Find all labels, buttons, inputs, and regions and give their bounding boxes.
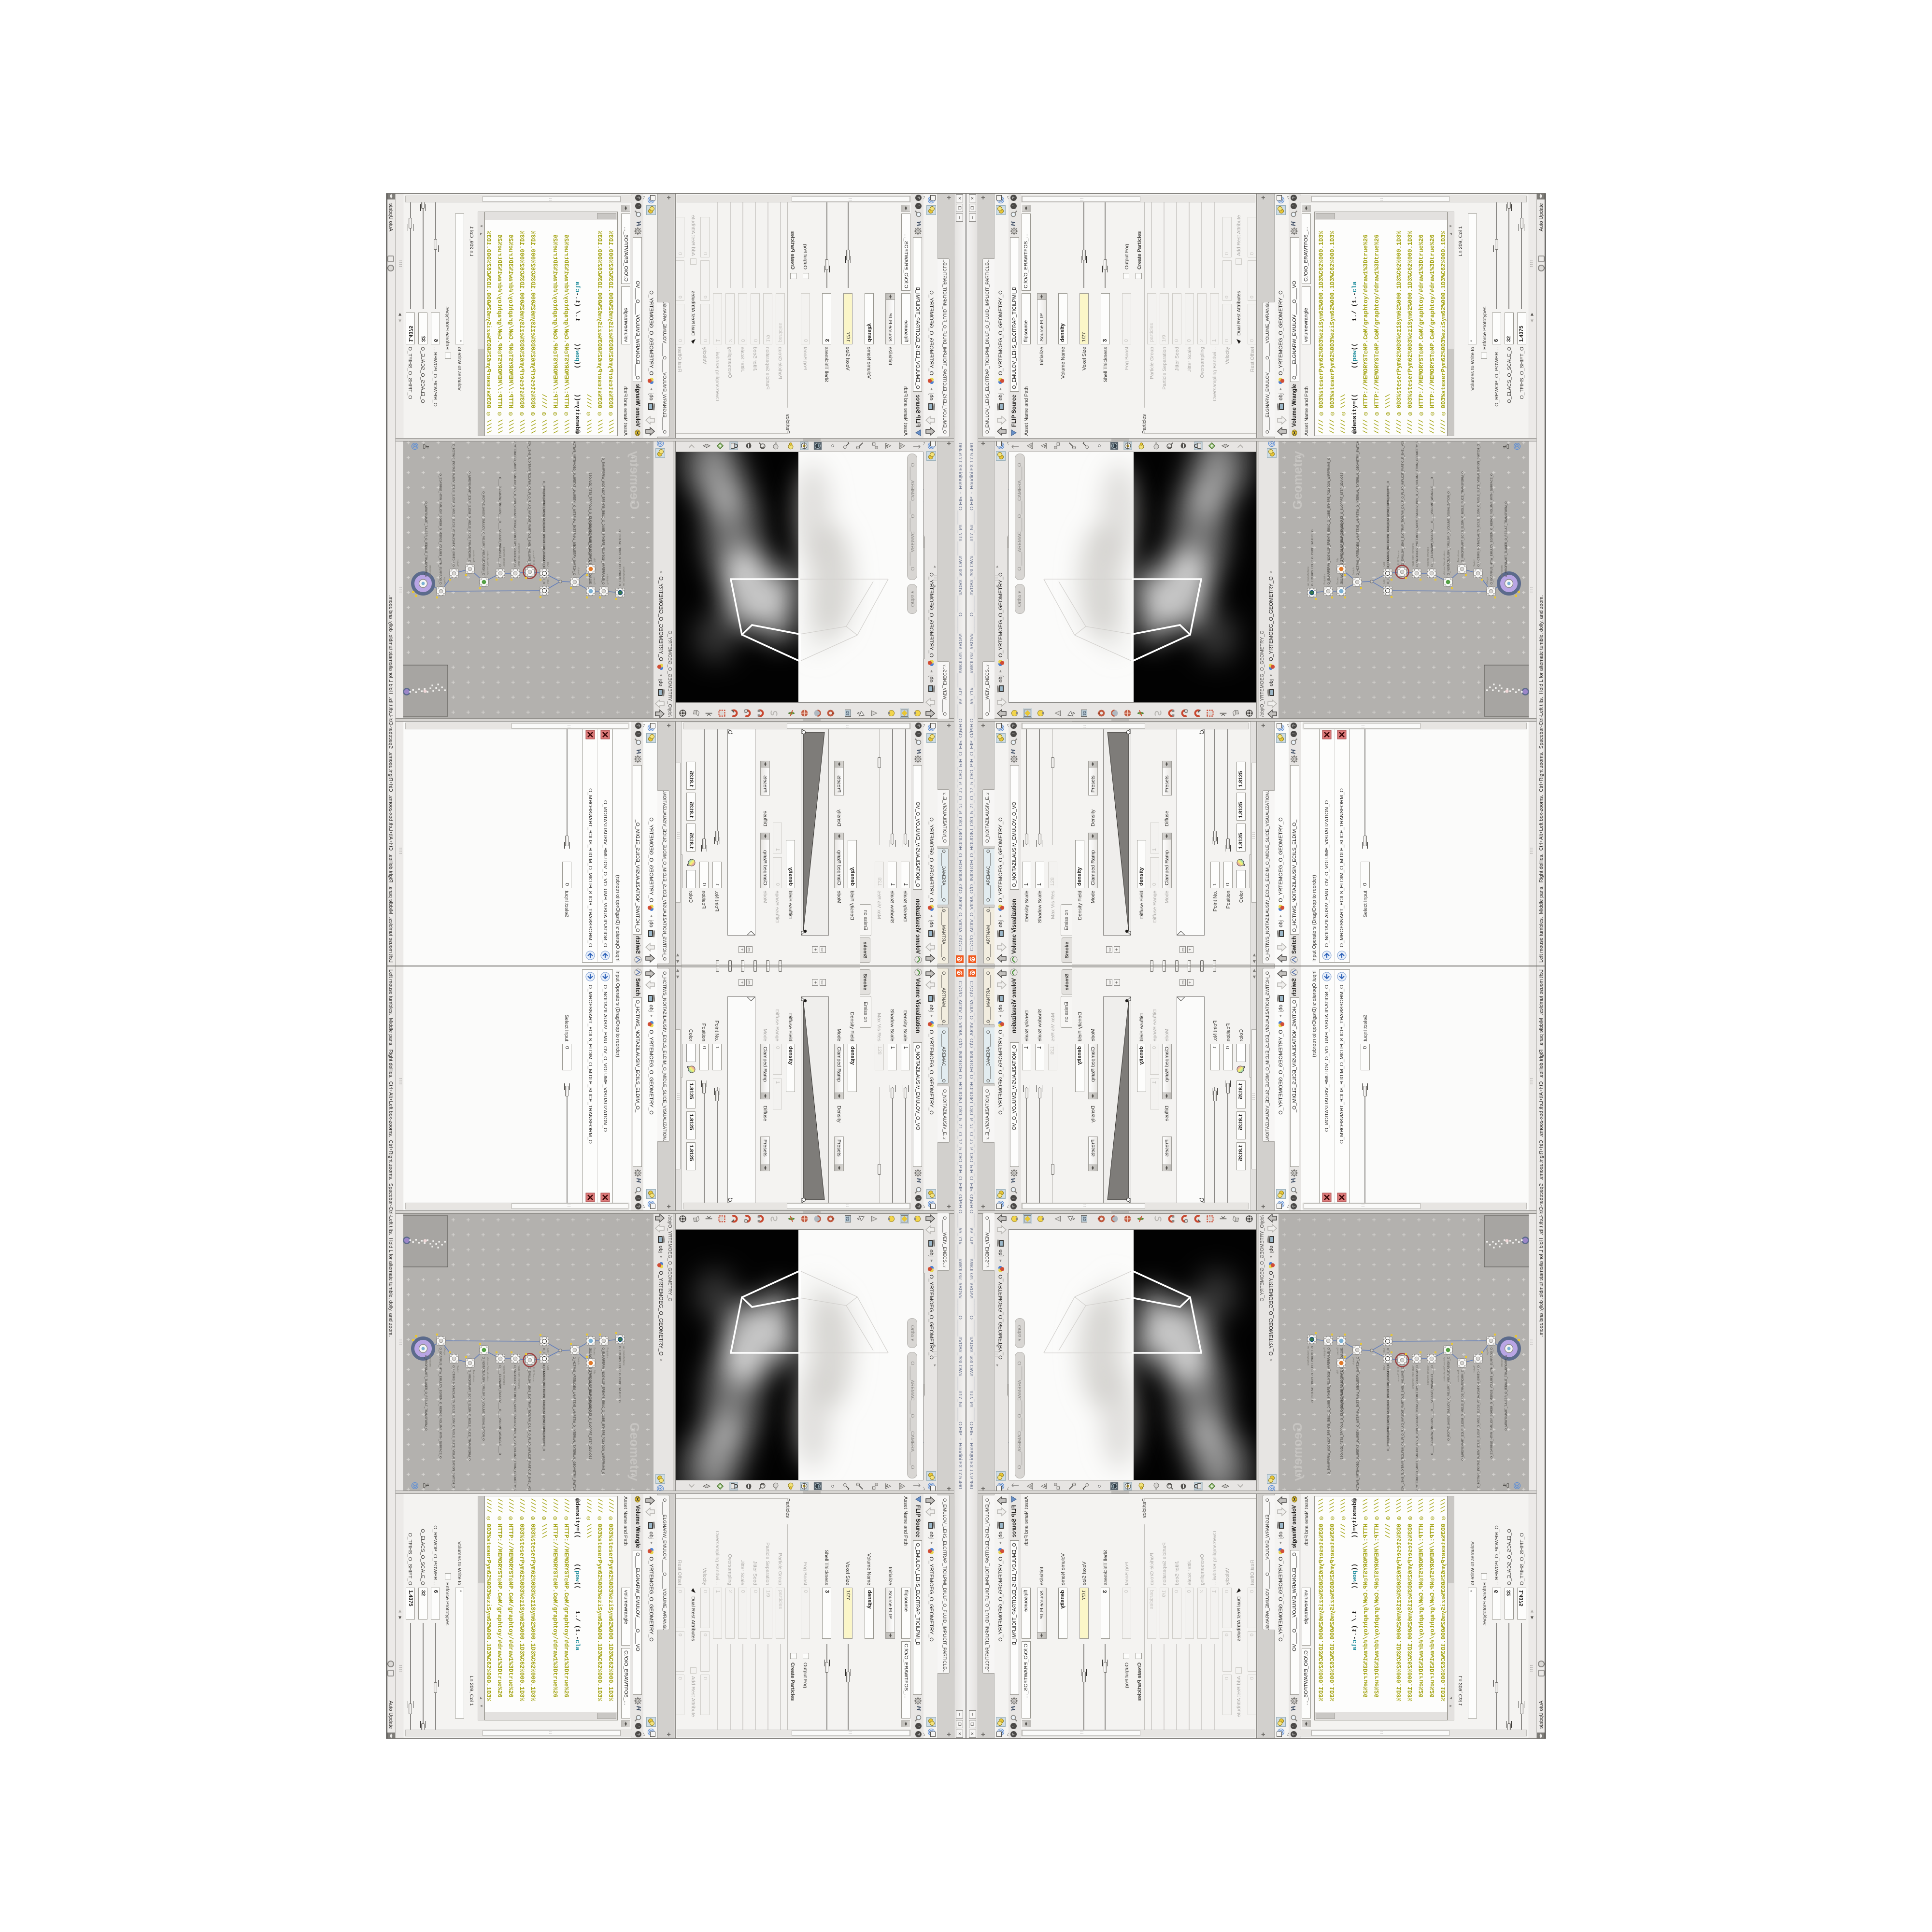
svg-text:Transform: Transform — [1501, 1355, 1504, 1367]
svg-text:O_HCTIWS_NOITAZILAUSV_ECILS_EL: O_HCTIWS_NOITAZILAUSV_ECILS_ELDIM_O_MIDL… — [452, 1365, 455, 1488]
svg-text:Volume Wrangle: Volume Wrangle — [1427, 1365, 1430, 1385]
svg-text:O_HCTIWS_NOITAZILAUSV_ECILS_EL: O_HCTIWS_NOITAZILAUSV_ECILS_ELDIM_O_MIDL… — [452, 444, 455, 567]
svg-text:?: ? — [1011, 724, 1016, 727]
svg-text:PolyWire: PolyWire — [606, 574, 609, 584]
svg-text:O_HCTIWS_YRTEMOEG_LANRETXE_LAN: O_HCTIWS_YRTEMOEG_LANRETXE_LANRETNI_O_IN… — [572, 439, 575, 575]
svg-text:O_ECAFRUS_HTIW_EMULOV_EGREM_O_: O_ECAFRUS_HTIW_EMULOV_EGREM_O_MERGE_VOLU… — [439, 473, 441, 584]
svg-text:ao_CubeSphere: ao_CubeSphere — [622, 1346, 625, 1365]
svg-text:Transform: Transform — [472, 1370, 475, 1382]
svg-text:O_MROFSNART_TLUSER_O_RESULT_TR: O_MROFSNART_TLUSER_O_RESULT_TRANSFORM_O — [1505, 501, 1508, 577]
svg-text:O_MQ_DIULF_ELIF_GENUS_O_D: O_MQ_DIULF_ELIF_GENUS_O_D — [1341, 1370, 1344, 1416]
svg-text:O_EMARFERIW_NOGYLOP_EREHPS_EBU: O_EMARFERIW_NOGYLOP_EREHPS_EBUC_O_CUBE_S… — [601, 1348, 604, 1475]
svg-text:Geometry: Geometry — [1290, 451, 1305, 510]
svg-text:?: ? — [1292, 1205, 1296, 1207]
svg-text:i: i — [1011, 205, 1016, 207]
svg-text:O_MROFSNART_TLUSER_O_RESULT_TR: O_MROFSNART_TLUSER_O_RESULT_TRANSFORM_O — [424, 1355, 427, 1431]
svg-text:VDB from Polygons: VDB from Polygons — [517, 1365, 520, 1389]
svg-text:ao_CubeSphere: ao_CubeSphere — [1307, 567, 1310, 586]
svg-text:O_MROFSNART_TLUSER_O_RESULT_TR: O_MROFSNART_TLUSER_O_RESULT_TRANSFORM_O — [1505, 1355, 1508, 1431]
svg-text:O_MROFSNART_ECILS_ELDIM_O_MIDL: O_MROFSNART_ECILS_ELDIM_O_MIDLE_SLICE_TR… — [468, 471, 470, 562]
svg-text:O_SNOGILOP_YRTEMOEG_MORF_EMULO: O_SNOGILOP_YRTEMOEG_MORF_EMULOV_BDV_O_VD… — [1416, 439, 1419, 567]
svg-text:i: i — [636, 205, 640, 207]
svg-text:O_SNOGILOP_YRTEMOEG_MORF_EMULO: O_SNOGILOP_YRTEMOEG_MORF_EMULOV_BDV_O_VD… — [1416, 1365, 1419, 1493]
svg-text:?: ? — [636, 197, 640, 199]
svg-text:Transform: Transform — [1501, 565, 1504, 577]
svg-text:i: i — [636, 733, 640, 735]
svg-text:O_NOITAZILAUSIV_EMULOV_O_VOLUM: O_NOITAZILAUSIV_EMULOV_O_VOLUME_VISUALIZ… — [482, 1357, 484, 1441]
svg-text:i: i — [1292, 205, 1296, 207]
svg-text:Bound: Bound — [1336, 1348, 1339, 1355]
svg-text:?: ? — [636, 724, 640, 727]
svg-text:O_SNOGILOP_YRTEMOEG_MORF_EMULO: O_SNOGILOP_YRTEMOEG_MORF_EMULOV_BDV_O_VD… — [513, 439, 516, 567]
svg-text:Volume Wrangle: Volume Wrangle — [502, 547, 505, 567]
svg-text:Transform: Transform — [1457, 550, 1460, 562]
svg-text:O____ELGNARW_EMULOV____O____VO: O____ELGNARW_EMULOV____O____VOLUME_WRANG… — [1431, 477, 1434, 567]
svg-text:Bound: Bound — [593, 1348, 596, 1355]
svg-text:7D: 7D — [845, 710, 850, 715]
svg-text:PolyWire: PolyWire — [606, 1348, 609, 1358]
svg-text:Geometry: Geometry — [627, 451, 642, 510]
svg-text:VDB from Polygons: VDB from Polygons — [1412, 1365, 1415, 1389]
svg-text:O____ELGNARW_EMULOV____O____VO: O____ELGNARW_EMULOV____O____VOLUME_WRANG… — [1431, 1365, 1434, 1455]
svg-text:Geometry: Geometry — [627, 1422, 642, 1481]
svg-text:Geometry: Geometry — [1290, 1422, 1305, 1481]
svg-text:Volume Visualization: Volume Visualization — [486, 1357, 489, 1381]
svg-text:O_MROFSNART_TLUSER_O_RESULT_TR: O_MROFSNART_TLUSER_O_RESULT_TRANSFORM_O — [424, 501, 427, 577]
svg-text:Clip: Clip — [1383, 1365, 1386, 1370]
svg-text:Merge: Merge — [1486, 1348, 1489, 1355]
svg-text:Clip: Clip — [546, 580, 549, 584]
svg-text:O_EMULOV_ROLRETNI_PILC_O_CLIP_: O_EMULOV_ROLRETNI_PILC_O_CLIP_INTERIOR_V… — [542, 481, 545, 567]
svg-text:O_EMULOV_ROLRETNI_PILC_O_CLIP_: O_EMULOV_ROLRETNI_PILC_O_CLIP_INTERIOR_V… — [1387, 1365, 1390, 1451]
svg-text:O_EMULOV_LEHS_ELCITRAP_TICILPM: O_EMULOV_LEHS_ELCITRAP_TICILPMI_DIULF_O_… — [527, 1367, 530, 1493]
svg-text:Switch: Switch — [456, 1365, 459, 1373]
svg-text:?: ? — [1292, 724, 1296, 727]
svg-text:?: ? — [1292, 197, 1296, 199]
svg-text:?: ? — [1011, 197, 1016, 199]
svg-text:Volume Visualization: Volume Visualization — [1443, 1357, 1446, 1381]
svg-text:?: ? — [916, 724, 921, 727]
svg-text:PolyWire: PolyWire — [1323, 1348, 1326, 1358]
svg-text:?: ? — [1292, 1733, 1296, 1735]
svg-text:?: ? — [916, 197, 921, 199]
svg-text:7D: 7D — [845, 1217, 850, 1222]
svg-text:O_EMULOV_ROLRETNI_PILC_O_CLIP_: O_EMULOV_ROLRETNI_PILC_O_CLIP_INTERIOR_V… — [542, 1365, 545, 1451]
svg-text:File: File — [593, 558, 596, 562]
svg-text:VDB from Polygons: VDB from Polygons — [1412, 543, 1415, 567]
svg-text:O_MQ_DIULF_ELIF_GENUS_O_D: O_MQ_DIULF_ELIF_GENUS_O_D — [588, 1370, 591, 1416]
svg-text:Volume Wrangle: Volume Wrangle — [502, 1365, 505, 1385]
svg-text:O_SNOGILOP_YRTEMOEG_MORF_EMULO: O_SNOGILOP_YRTEMOEG_MORF_EMULOV_BDV_O_VD… — [513, 1365, 516, 1493]
svg-text:O_EMULOV_LEHS_ELCITRAP_TICILPM: O_EMULOV_LEHS_ELCITRAP_TICILPMI_DIULF_O_… — [1402, 1367, 1405, 1493]
svg-text:7D: 7D — [1082, 710, 1087, 715]
svg-text:O_ECAFRUS_HTIW_EMULOV_EGREM_O_: O_ECAFRUS_HTIW_EMULOV_EGREM_O_MERGE_VOLU… — [1491, 1348, 1493, 1459]
svg-text:i: i — [1011, 733, 1016, 735]
svg-text:?: ? — [916, 1205, 921, 1207]
svg-text:O_NOITAZILAUSIV_EMULOV_O_VOLUM: O_NOITAZILAUSIV_EMULOV_O_VOLUME_VISUALIZ… — [1448, 1357, 1450, 1441]
svg-text:O_EREHPS_EBUC_O_CUBE_SPHERE_O: O_EREHPS_EBUC_O_CUBE_SPHERE_O — [618, 1346, 621, 1403]
svg-text:Transform: Transform — [428, 565, 431, 577]
svg-text:O_HCTIWS_NOITAZILAUSV_ECILS_EL: O_HCTIWS_NOITAZILAUSV_ECILS_ELDIM_O_MIDL… — [1477, 444, 1480, 567]
svg-text:PolyWire: PolyWire — [1323, 574, 1326, 584]
svg-text:O_EMARFERIW_NOGYLOP_EREHPS_EBU: O_EMARFERIW_NOGYLOP_EREHPS_EBUC_O_CUBE_S… — [601, 457, 604, 584]
svg-text:Transform: Transform — [472, 550, 475, 562]
svg-text:O_HCTIWS_YRTEMOEG_LANRETXE_LAN: O_HCTIWS_YRTEMOEG_LANRETXE_LANRETNI_O_IN… — [1357, 439, 1360, 575]
svg-text:Switch: Switch — [577, 568, 580, 575]
svg-text:Clip: Clip — [1383, 580, 1386, 584]
svg-text:ao_CubeSphere: ao_CubeSphere — [622, 567, 625, 586]
svg-text:Clip: Clip — [1383, 562, 1386, 567]
svg-text:File: File — [593, 1370, 596, 1374]
svg-text:O_MQ_DIULF_ELIF_GENUS_O_D: O_MQ_DIULF_ELIF_GENUS_O_D — [1341, 516, 1344, 562]
svg-text:i: i — [916, 733, 921, 735]
svg-text:Bound: Bound — [1336, 577, 1339, 584]
svg-text:FLIP Source: FLIP Source — [532, 551, 535, 565]
svg-text:Volume Visualization: Volume Visualization — [486, 551, 489, 575]
svg-text:?: ? — [1011, 1205, 1016, 1207]
svg-text:FLIP Source: FLIP Source — [532, 1367, 535, 1381]
svg-text:O_EMULOV_ROLRETNI_PILC_O_CLIP_: O_EMULOV_ROLRETNI_PILC_O_CLIP_INTERIOR_V… — [1387, 481, 1390, 567]
svg-text:FLIP Source: FLIP Source — [1397, 1367, 1400, 1381]
svg-text:O_NOITAZILAUSIV_EMULOV_O_VOLUM: O_NOITAZILAUSIV_EMULOV_O_VOLUME_VISUALIZ… — [1448, 491, 1450, 575]
svg-text:Switch: Switch — [577, 1357, 580, 1364]
svg-text:Switch: Switch — [1352, 568, 1355, 575]
svg-text:O_MROFSNART_ECILS_ELDIM_O_MIDL: O_MROFSNART_ECILS_ELDIM_O_MIDLE_SLICE_TR… — [468, 1370, 470, 1461]
svg-text:Volume Wrangle: Volume Wrangle — [1427, 547, 1430, 567]
svg-text:?: ? — [1011, 1733, 1016, 1735]
svg-text:Switch: Switch — [1473, 1365, 1476, 1373]
svg-text:Bound: Bound — [593, 577, 596, 584]
svg-text:O____ELGNARW_EMULOV____O____VO: O____ELGNARW_EMULOV____O____VOLUME_WRANG… — [498, 1365, 501, 1455]
svg-text:O_EMARFERIW_NOGYLOP_EREHPS_EBU: O_EMARFERIW_NOGYLOP_EREHPS_EBUC_O_CUBE_S… — [1328, 457, 1331, 584]
svg-text:O_EREHPS_EBUC_O_CUBE_SPHERE_O: O_EREHPS_EBUC_O_CUBE_SPHERE_O — [1311, 529, 1314, 586]
svg-text:O_HCTIWS_NOITAZILAUSV_ECILS_EL: O_HCTIWS_NOITAZILAUSV_ECILS_ELDIM_O_MIDL… — [1477, 1365, 1480, 1488]
svg-text:O_MQ_DIULF_ELIF_GENUS_O_D: O_MQ_DIULF_ELIF_GENUS_O_D — [588, 516, 591, 562]
svg-text:i: i — [916, 205, 921, 207]
svg-text:Transform: Transform — [428, 1355, 431, 1367]
svg-text:Transform: Transform — [1457, 1370, 1460, 1382]
svg-text:i: i — [1292, 733, 1296, 735]
svg-text:?: ? — [636, 1205, 640, 1207]
svg-text:O_EMULOV_LEHS_ELCITRAP_TICILPM: O_EMULOV_LEHS_ELCITRAP_TICILPMI_DIULF_O_… — [1402, 439, 1405, 565]
svg-text:Clip: Clip — [546, 1365, 549, 1370]
svg-text:O_MROFSNART_ECILS_ELDIM_O_MIDL: O_MROFSNART_ECILS_ELDIM_O_MIDLE_SLICE_TR… — [1462, 471, 1464, 562]
svg-text:Clip: Clip — [1383, 1348, 1386, 1352]
svg-text:Clip: Clip — [546, 1348, 549, 1352]
svg-text:7D: 7D — [1082, 1217, 1087, 1222]
svg-text:?: ? — [636, 1733, 640, 1735]
svg-text:O_EMULOV_LEHS_ELCITRAP_TICILPM: O_EMULOV_LEHS_ELCITRAP_TICILPMI_DIULF_O_… — [527, 439, 530, 565]
svg-text:Volume Visualization: Volume Visualization — [1443, 551, 1446, 575]
svg-text:O_HCTIWS_YRTEMOEG_LANRETXE_LAN: O_HCTIWS_YRTEMOEG_LANRETXE_LANRETNI_O_IN… — [1357, 1357, 1360, 1493]
svg-text:File: File — [1336, 558, 1339, 562]
svg-text:O_ECAFRUS_HTIW_EMULOV_EGREM_O_: O_ECAFRUS_HTIW_EMULOV_EGREM_O_MERGE_VOLU… — [1491, 473, 1493, 584]
svg-text:O_NOITAZILAUSIV_EMULOV_O_VOLUM: O_NOITAZILAUSIV_EMULOV_O_VOLUME_VISUALIZ… — [482, 491, 484, 575]
svg-text:ao_CubeSphere: ao_CubeSphere — [1307, 1346, 1310, 1365]
svg-text:FLIP Source: FLIP Source — [1397, 551, 1400, 565]
svg-text:Clip: Clip — [546, 562, 549, 567]
svg-text:O_HCTIWS_YRTEMOEG_LANRETXE_LAN: O_HCTIWS_YRTEMOEG_LANRETXE_LANRETNI_O_IN… — [572, 1357, 575, 1493]
svg-text:File: File — [1336, 1370, 1339, 1374]
svg-text:O____ELGNARW_EMULOV____O____VO: O____ELGNARW_EMULOV____O____VOLUME_WRANG… — [498, 477, 501, 567]
svg-text:Merge: Merge — [1486, 577, 1489, 584]
svg-text:Switch: Switch — [456, 559, 459, 567]
svg-text:Switch: Switch — [1352, 1357, 1355, 1364]
svg-text:O_ECAFRUS_HTIW_EMULOV_EGREM_O_: O_ECAFRUS_HTIW_EMULOV_EGREM_O_MERGE_VOLU… — [439, 1348, 441, 1459]
svg-text:O_EMARFERIW_NOGYLOP_EREHPS_EBU: O_EMARFERIW_NOGYLOP_EREHPS_EBUC_O_CUBE_S… — [1328, 1348, 1331, 1475]
svg-text:O_MROFSNART_ECILS_ELDIM_O_MIDL: O_MROFSNART_ECILS_ELDIM_O_MIDLE_SLICE_TR… — [1462, 1370, 1464, 1461]
svg-text:Switch: Switch — [1473, 559, 1476, 567]
svg-text:Merge: Merge — [443, 1348, 446, 1355]
svg-text:?: ? — [916, 1733, 921, 1735]
svg-text:O_EREHPS_EBUC_O_CUBE_SPHERE_O: O_EREHPS_EBUC_O_CUBE_SPHERE_O — [618, 529, 621, 586]
svg-text:Merge: Merge — [443, 577, 446, 584]
svg-text:O_EREHPS_EBUC_O_CUBE_SPHERE_O: O_EREHPS_EBUC_O_CUBE_SPHERE_O — [1311, 1346, 1314, 1403]
svg-text:VDB from Polygons: VDB from Polygons — [517, 543, 520, 567]
